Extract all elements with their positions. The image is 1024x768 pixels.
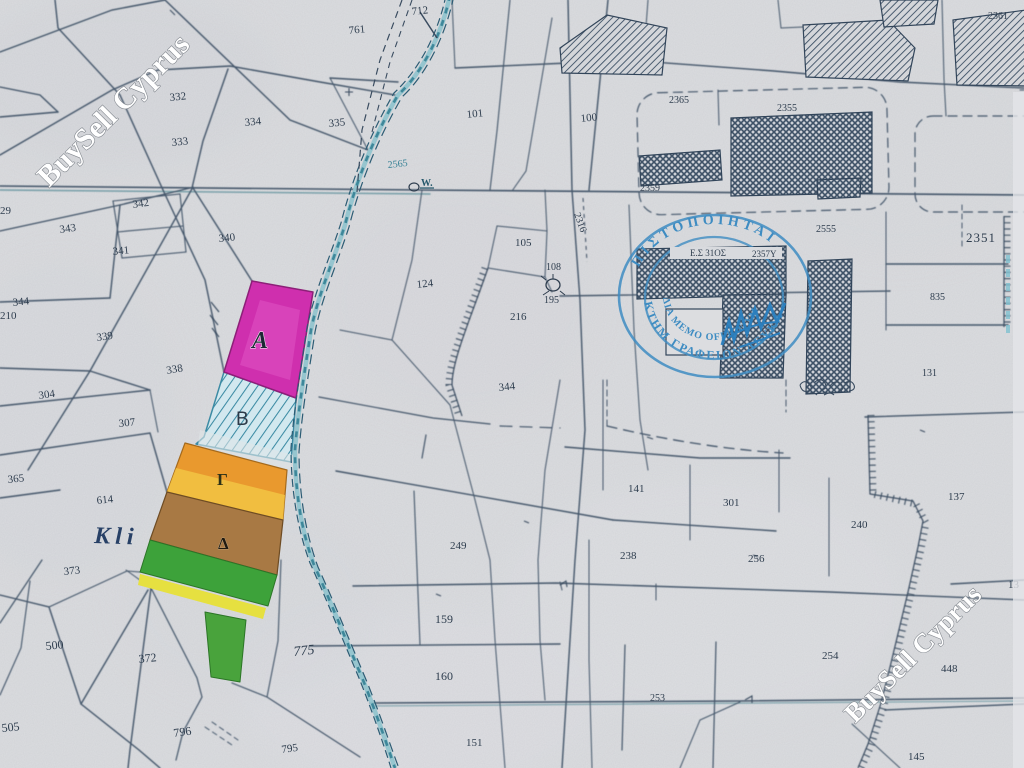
svg-text:761: 761 (348, 23, 366, 37)
svg-text:365: 365 (7, 472, 25, 486)
svg-text:145: 145 (908, 751, 925, 763)
svg-text:2355: 2355 (777, 103, 797, 114)
svg-text:340: 340 (218, 231, 236, 245)
svg-text:W.: W. (421, 178, 433, 189)
svg-text:505: 505 (1, 719, 20, 735)
svg-text:2365: 2365 (669, 95, 689, 106)
svg-text:344: 344 (498, 380, 516, 394)
svg-text:137: 137 (948, 491, 965, 503)
svg-text:216: 216 (510, 311, 527, 323)
svg-text:29: 29 (0, 205, 12, 217)
svg-text:B: B (236, 409, 249, 430)
svg-text:307: 307 (118, 416, 136, 430)
svg-text:301: 301 (723, 497, 740, 509)
svg-text:Kli: Kli (93, 523, 139, 551)
svg-text:339: 339 (96, 330, 115, 344)
svg-text:238: 238 (620, 550, 637, 562)
svg-text:Ε.Σ 31ΟΣ: Ε.Σ 31ΟΣ (690, 248, 726, 258)
svg-text:2555: 2555 (816, 224, 836, 235)
svg-text:Γ: Γ (217, 470, 228, 489)
svg-text:151: 151 (466, 737, 483, 749)
svg-text:124: 124 (416, 277, 434, 291)
svg-text:101: 101 (466, 107, 484, 121)
svg-text:373: 373 (63, 564, 81, 578)
svg-text:304: 304 (38, 388, 57, 402)
svg-text:210: 210 (0, 310, 17, 322)
svg-text:795: 795 (281, 742, 300, 756)
svg-text:249: 249 (450, 540, 467, 552)
svg-text:256: 256 (748, 553, 765, 565)
svg-text:334: 334 (244, 115, 262, 129)
svg-text:159: 159 (435, 612, 453, 626)
svg-text:100: 100 (580, 111, 598, 125)
svg-text:712: 712 (411, 4, 429, 18)
svg-text:253: 253 (650, 693, 665, 704)
svg-text:105: 105 (515, 237, 532, 249)
svg-text:500: 500 (45, 637, 64, 653)
svg-text:2359: 2359 (640, 183, 660, 194)
svg-text:342: 342 (132, 197, 150, 211)
svg-text:240: 240 (851, 519, 868, 531)
svg-text:372: 372 (138, 650, 157, 666)
svg-text:341: 341 (112, 244, 130, 258)
svg-text:335: 335 (328, 116, 346, 130)
svg-text:775: 775 (293, 643, 315, 660)
svg-text:614: 614 (96, 493, 114, 507)
svg-text:2351: 2351 (966, 230, 996, 245)
svg-text:A: A (250, 328, 268, 354)
svg-text:108: 108 (546, 262, 561, 273)
svg-text:2565: 2565 (387, 158, 408, 171)
svg-text:2357Υ: 2357Υ (752, 249, 777, 259)
svg-text:254: 254 (822, 650, 839, 662)
svg-text:333: 333 (171, 135, 189, 149)
svg-text:344: 344 (12, 295, 30, 309)
svg-text:195: 195 (544, 295, 559, 306)
svg-text:448: 448 (941, 663, 958, 675)
svg-text:796: 796 (172, 724, 192, 740)
svg-text:160: 160 (435, 669, 453, 683)
svg-text:2361: 2361 (988, 11, 1008, 22)
svg-text:131: 131 (922, 368, 937, 379)
svg-text:332: 332 (169, 90, 187, 104)
svg-text:Δ: Δ (218, 534, 229, 553)
svg-text:835: 835 (930, 292, 945, 303)
svg-text:343: 343 (59, 222, 78, 236)
svg-text:141: 141 (628, 483, 645, 495)
